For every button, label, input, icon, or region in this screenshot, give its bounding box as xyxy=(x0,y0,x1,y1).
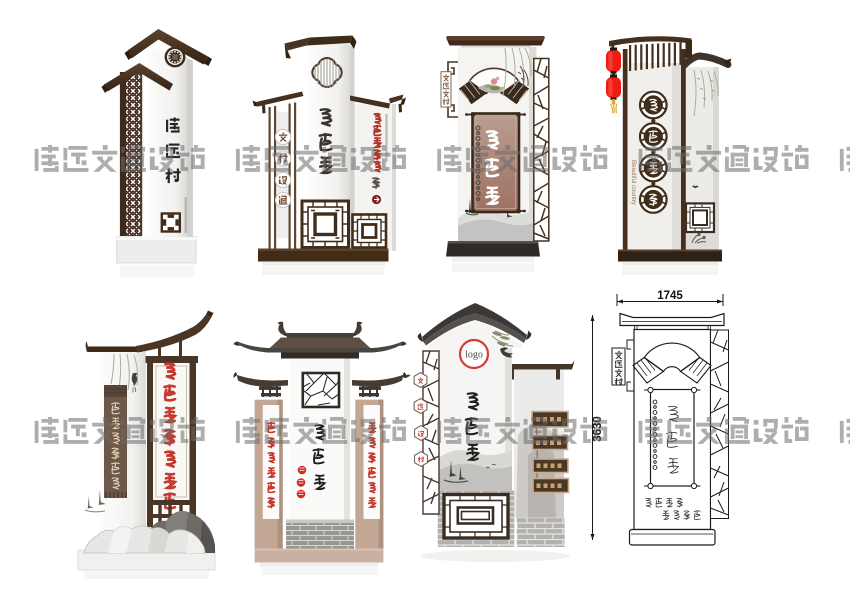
svg-text:1745: 1745 xyxy=(657,290,683,302)
svg-text:Beautiful country: Beautiful country xyxy=(630,160,636,205)
svg-text:logo: logo xyxy=(465,350,483,361)
